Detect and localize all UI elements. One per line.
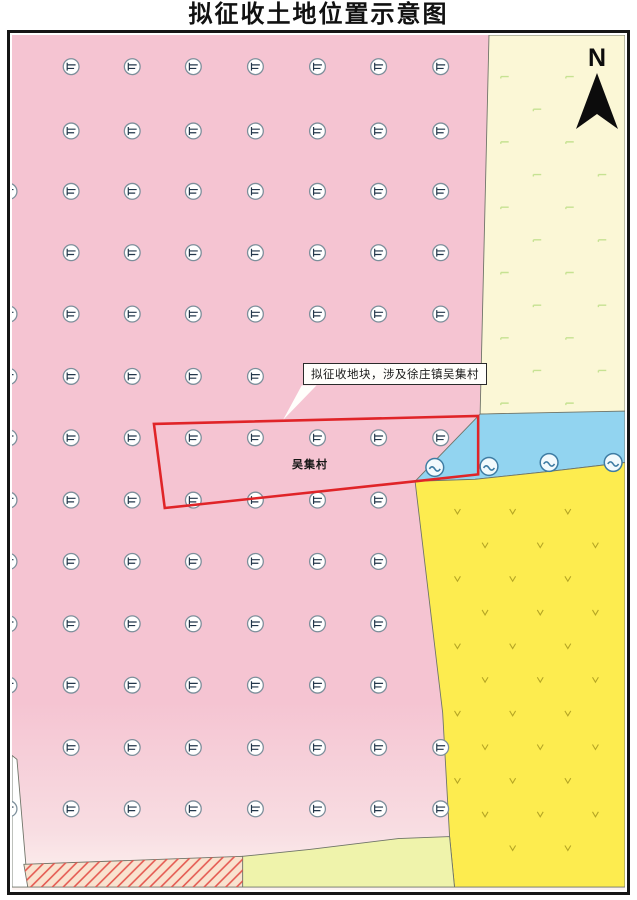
village-label: 吴集村: [264, 456, 356, 472]
map-frame: N 拟征收地块，涉及徐庄镇吴集村 吴集村: [7, 30, 630, 895]
north-arrow-icon: [568, 71, 626, 135]
north-indicator: N: [568, 45, 626, 145]
parcel-callout: 拟征收地块，涉及徐庄镇吴集村: [303, 363, 487, 385]
north-label: N: [568, 45, 626, 71]
page-title: 拟征收土地位置示意图: [0, 0, 637, 30]
